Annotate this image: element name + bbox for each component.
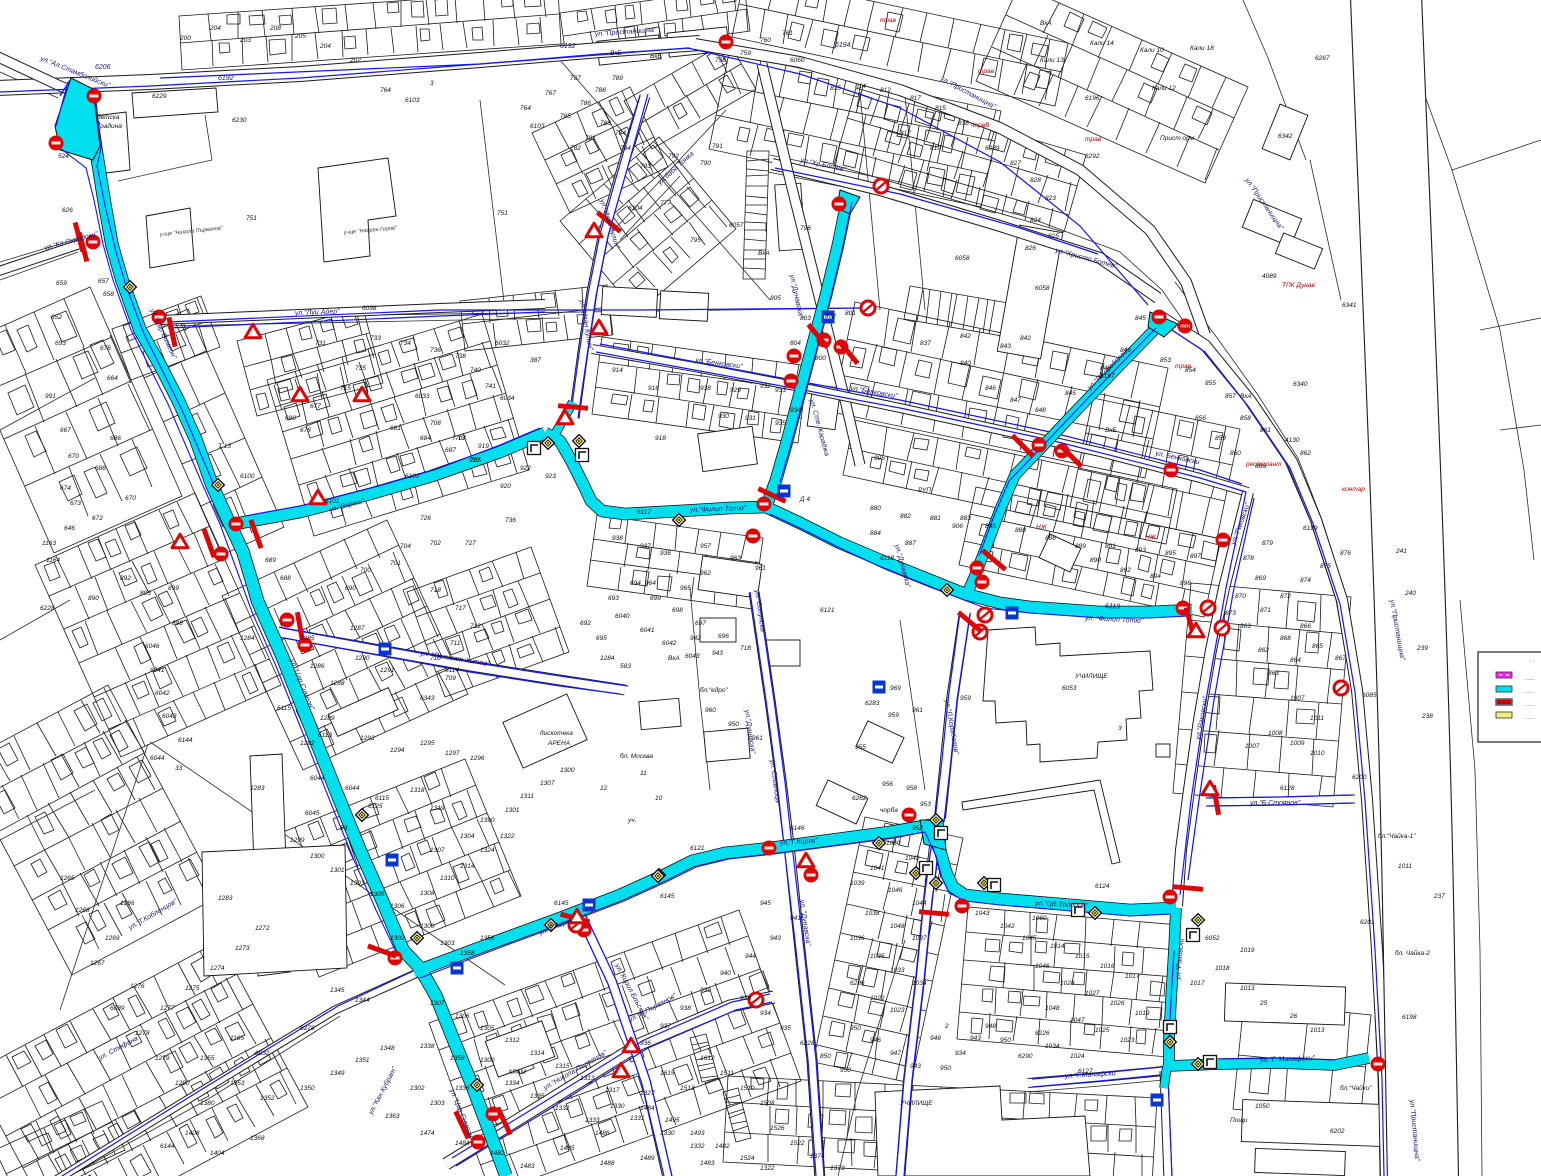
svg-text:758: 758 (715, 57, 726, 64)
svg-text:1330: 1330 (610, 1103, 625, 1110)
svg-text:1300: 1300 (310, 853, 325, 860)
svg-text:6114: 6114 (445, 667, 459, 674)
svg-text:688: 688 (95, 465, 106, 472)
svg-text:6089: 6089 (985, 145, 1000, 152)
svg-text:882: 882 (900, 513, 911, 520)
svg-text:688: 688 (280, 575, 291, 582)
svg-text:955: 955 (855, 744, 866, 751)
svg-text:824: 824 (1030, 217, 1041, 224)
svg-text:6043: 6043 (162, 713, 177, 720)
svg-text:847: 847 (1010, 397, 1021, 404)
svg-text:1314: 1314 (460, 863, 475, 870)
svg-text:26: 26 (1289, 1013, 1298, 1020)
svg-text:1046: 1046 (1035, 963, 1050, 970)
svg-text:929: 929 (730, 387, 741, 394)
svg-text:6032: 6032 (495, 340, 510, 347)
svg-text:1296: 1296 (470, 755, 485, 762)
svg-text:1318: 1318 (410, 787, 425, 794)
svg-text:819: 819 (930, 145, 941, 152)
svg-text:1011: 1011 (1310, 715, 1324, 722)
svg-text:1025: 1025 (1095, 1027, 1110, 1034)
svg-text:1283: 1283 (250, 785, 265, 792)
svg-text:1022: 1022 (870, 995, 885, 1002)
svg-text:ВкБ: ВкБ (650, 53, 662, 60)
svg-text:238: 238 (1421, 713, 1433, 720)
svg-text:6102: 6102 (405, 473, 420, 480)
svg-text:1331: 1331 (630, 1115, 645, 1122)
svg-text:1345: 1345 (330, 987, 345, 994)
svg-text:1304: 1304 (460, 833, 475, 840)
svg-text:878: 878 (1243, 555, 1254, 562)
svg-text:1510: 1510 (740, 1085, 755, 1092)
svg-text:1009: 1009 (1290, 740, 1305, 747)
svg-text:6042: 6042 (155, 690, 170, 697)
svg-text:659: 659 (56, 280, 67, 287)
svg-text:1034: 1034 (1045, 1043, 1060, 1050)
svg-text:1015: 1015 (1075, 953, 1090, 960)
svg-text:6230: 6230 (232, 117, 247, 124)
svg-text:876: 876 (1340, 550, 1351, 557)
svg-text:1026: 1026 (1110, 1000, 1125, 1007)
svg-text:726: 726 (420, 515, 431, 522)
svg-text:ул.“Б.Стоянов”: ул.“Б.Стоянов” (1249, 800, 1301, 807)
svg-text:885: 885 (985, 523, 996, 530)
svg-text:927: 927 (469, 457, 480, 464)
svg-text:6124: 6124 (1095, 883, 1110, 890)
svg-text:1368: 1368 (250, 1135, 265, 1142)
svg-text:667: 667 (60, 427, 71, 434)
svg-text:6290: 6290 (1018, 1053, 1033, 1060)
svg-text:T 13: T 13 (218, 443, 231, 450)
svg-text:1513: 1513 (680, 1085, 695, 1092)
svg-text:764: 764 (380, 87, 391, 94)
svg-text:33: 33 (175, 765, 183, 772)
svg-text:937: 937 (660, 1023, 671, 1030)
svg-text:1035: 1035 (870, 953, 885, 960)
svg-text:6228: 6228 (800, 1040, 815, 1047)
svg-text:1014: 1014 (1050, 943, 1065, 950)
svg-text:961: 961 (755, 565, 766, 572)
svg-text:864: 864 (1290, 657, 1301, 664)
svg-text:734: 734 (400, 340, 411, 347)
svg-text:697: 697 (695, 620, 706, 627)
svg-text:1332: 1332 (690, 1143, 705, 1150)
svg-text:1484: 1484 (640, 1105, 655, 1112)
svg-text:1482: 1482 (490, 1150, 505, 1157)
svg-text:6267: 6267 (1315, 55, 1330, 62)
svg-text:6118: 6118 (880, 555, 894, 562)
svg-text:1275: 1275 (185, 985, 200, 992)
svg-text:678: 678 (300, 427, 311, 434)
svg-text:6198: 6198 (1402, 1014, 1417, 1021)
svg-text:842: 842 (960, 333, 971, 340)
svg-text:НЖ: НЖ (1036, 524, 1048, 531)
svg-text:938: 938 (740, 995, 751, 1002)
svg-text:1268: 1268 (75, 907, 90, 914)
svg-text:1313: 1313 (580, 1075, 595, 1082)
svg-text:803: 803 (800, 315, 811, 322)
svg-text:958: 958 (906, 785, 917, 792)
svg-text:861: 861 (1260, 427, 1271, 434)
svg-text:715: 715 (340, 385, 351, 392)
svg-text:трав: трав (978, 68, 995, 75)
svg-text:842: 842 (1020, 335, 1031, 342)
svg-text:869: 869 (1255, 575, 1266, 582)
svg-text:815: 815 (830, 85, 841, 92)
svg-text:850: 850 (820, 1053, 831, 1060)
svg-text:6042: 6042 (662, 640, 677, 647)
svg-text:740: 740 (470, 367, 481, 374)
svg-text:6113: 6113 (318, 732, 332, 739)
svg-text:950: 950 (850, 1025, 861, 1032)
svg-text:736: 736 (505, 517, 516, 524)
svg-text:788: 788 (595, 87, 606, 94)
svg-text:738: 738 (455, 353, 466, 360)
svg-text:857: 857 (1225, 393, 1236, 400)
svg-text:845: 845 (1135, 315, 1146, 322)
svg-text:1289: 1289 (320, 715, 335, 722)
svg-text:1300: 1300 (480, 1057, 495, 1064)
svg-text:690: 690 (345, 585, 356, 592)
svg-text:873: 873 (1225, 610, 1236, 617)
svg-text:ЧервВ: ЧервВ (970, 122, 990, 129)
svg-text:202: 202 (349, 57, 361, 64)
svg-text:764: 764 (520, 105, 531, 112)
svg-text:845: 845 (1065, 390, 1076, 397)
svg-text:дискотека: дискотека (540, 729, 573, 737)
svg-text:1274: 1274 (210, 965, 225, 972)
svg-text:777: 777 (660, 200, 671, 207)
svg-text:827: 827 (1010, 160, 1021, 167)
svg-text:1291: 1291 (380, 667, 395, 674)
svg-text:1358: 1358 (460, 950, 475, 957)
svg-text:6103: 6103 (530, 123, 545, 130)
svg-text:6041: 6041 (640, 627, 655, 634)
svg-text:1013: 1013 (1240, 985, 1255, 992)
svg-text:934: 934 (760, 1010, 771, 1017)
svg-text:957: 957 (700, 543, 711, 550)
svg-text:681: 681 (390, 425, 401, 432)
svg-text:трав: трав (880, 17, 897, 24)
svg-text:789: 789 (612, 75, 623, 82)
svg-text:843: 843 (1000, 343, 1011, 350)
svg-text:944: 944 (745, 953, 756, 960)
svg-text:6058: 6058 (955, 255, 970, 262)
svg-text:934: 934 (790, 407, 801, 414)
svg-text:1352: 1352 (260, 1095, 275, 1102)
svg-text:53: 53 (340, 825, 348, 832)
svg-text:1299: 1299 (290, 837, 305, 844)
svg-text:1315: 1315 (555, 1063, 570, 1070)
svg-text:693: 693 (608, 595, 619, 602)
svg-text:1489: 1489 (640, 1155, 655, 1162)
svg-text:6286: 6286 (850, 980, 865, 987)
svg-text:ВкБ: ВкБ (610, 50, 622, 57)
svg-text:1028: 1028 (1060, 980, 1075, 987)
svg-text:1349: 1349 (330, 1070, 345, 1077)
svg-text:673: 673 (70, 500, 81, 507)
svg-text:790: 790 (700, 160, 711, 167)
svg-text:3: 3 (1118, 725, 1122, 732)
svg-text:6085: 6085 (1362, 692, 1377, 699)
svg-text:826: 826 (1025, 245, 1036, 252)
svg-text:1163: 1163 (42, 540, 56, 547)
svg-text:1333: 1333 (585, 1117, 600, 1124)
svg-text:237: 237 (1433, 893, 1445, 900)
svg-text:1018: 1018 (1215, 965, 1230, 972)
svg-text:1047: 1047 (1070, 1017, 1085, 1024)
svg-text:653: 653 (55, 340, 66, 347)
svg-text:943: 943 (770, 935, 781, 942)
svg-text:936: 936 (660, 550, 671, 557)
svg-text:Кали 12: Кали 12 (1152, 85, 1176, 92)
svg-text:802: 802 (825, 313, 836, 320)
svg-text:524: 524 (58, 153, 69, 160)
svg-text:1303: 1303 (430, 1100, 445, 1107)
svg-text:1358: 1358 (450, 1055, 465, 1062)
svg-text:1483: 1483 (700, 1160, 715, 1167)
svg-text:уч.: уч. (627, 817, 637, 824)
svg-text:Д 4: Д 4 (799, 496, 810, 503)
svg-text:891: 891 (1105, 543, 1116, 550)
svg-text:бл. Чайка-2: бл. Чайка-2 (1395, 949, 1430, 957)
svg-text:6262: 6262 (852, 795, 867, 802)
svg-text:1495: 1495 (665, 1117, 680, 1124)
svg-text:ВкА: ВкА (1240, 393, 1252, 400)
svg-text:1277: 1277 (160, 1005, 175, 1012)
svg-text:948: 948 (985, 1023, 996, 1030)
svg-text:1508: 1508 (760, 1100, 775, 1107)
svg-text:893: 893 (140, 590, 151, 597)
svg-text:710: 710 (430, 655, 441, 662)
svg-text:919: 919 (478, 443, 489, 450)
svg-text:782: 782 (570, 145, 581, 152)
svg-text:846: 846 (1120, 347, 1131, 354)
svg-text:702: 702 (430, 540, 441, 547)
svg-text:1311: 1311 (520, 793, 534, 800)
svg-text:658: 658 (103, 291, 114, 298)
svg-text:1278: 1278 (135, 1030, 150, 1037)
svg-text:ул.“Луи Айер”: ул.“Луи Айер” (294, 307, 340, 317)
svg-text:1330: 1330 (660, 1130, 675, 1137)
svg-text:704: 704 (400, 543, 411, 550)
svg-text:1023: 1023 (890, 1007, 905, 1014)
svg-text:6292: 6292 (1085, 153, 1100, 160)
svg-text:ВкА: ВкА (1040, 20, 1052, 27)
svg-text:887: 887 (905, 540, 916, 547)
svg-text:11: 11 (640, 770, 647, 777)
svg-text:938: 938 (612, 535, 623, 542)
svg-text:892: 892 (120, 575, 131, 582)
svg-text:626: 626 (62, 207, 73, 214)
svg-text:4089: 4089 (1262, 273, 1277, 280)
svg-text:950: 950 (840, 1067, 851, 1074)
svg-text:943: 943 (712, 650, 723, 657)
svg-text:6144: 6144 (160, 1143, 175, 1150)
svg-text:1482: 1482 (715, 1143, 730, 1150)
svg-text:863: 863 (1240, 623, 1251, 630)
svg-text:6283: 6283 (865, 700, 880, 707)
svg-text:1265: 1265 (60, 875, 75, 882)
svg-text:6052: 6052 (1205, 935, 1220, 942)
svg-text:881: 881 (930, 515, 941, 522)
svg-text:1474: 1474 (420, 1130, 435, 1137)
svg-text:872: 872 (1280, 593, 1291, 600)
svg-text:1288: 1288 (330, 680, 345, 687)
svg-text:760: 760 (760, 37, 771, 44)
svg-text:871: 871 (1260, 607, 1271, 614)
svg-text:1027: 1027 (1085, 990, 1100, 997)
svg-text:652: 652 (51, 314, 62, 321)
svg-text:Кали 13: Кали 13 (1040, 57, 1064, 64)
svg-text:1048: 1048 (890, 923, 905, 930)
svg-text:677: 677 (310, 403, 321, 410)
svg-text:1302: 1302 (410, 1085, 425, 1092)
svg-text:6046: 6046 (145, 643, 160, 650)
svg-text:1290: 1290 (355, 655, 370, 662)
svg-text:865: 865 (1312, 643, 1323, 650)
svg-text:894: 894 (1150, 573, 1161, 580)
svg-text:.......: ....... (1525, 702, 1535, 708)
svg-text:1305: 1305 (480, 1025, 495, 1032)
svg-text:1351: 1351 (355, 1057, 370, 1064)
svg-text:1284: 1284 (600, 655, 615, 662)
svg-text:РУП: РУП (918, 487, 931, 494)
svg-text:858: 858 (1240, 415, 1251, 422)
svg-text:696: 696 (718, 633, 729, 640)
svg-text:1307: 1307 (430, 847, 445, 854)
svg-text:6128: 6128 (1280, 785, 1295, 792)
svg-text:1037: 1037 (912, 935, 927, 942)
svg-text:1033: 1033 (890, 967, 905, 974)
svg-text:бл. Москва: бл. Москва (620, 752, 653, 760)
svg-text:6039: 6039 (110, 1005, 125, 1012)
svg-text:бл.“едро”: бл.“едро” (700, 686, 729, 694)
svg-text:670: 670 (68, 453, 79, 460)
svg-text:1301: 1301 (330, 867, 345, 874)
svg-text:6101: 6101 (325, 498, 340, 505)
svg-text:6340: 6340 (1293, 381, 1308, 388)
svg-text:6196: 6196 (1085, 95, 1100, 102)
svg-text:930: 930 (718, 413, 729, 420)
svg-text:25: 25 (1259, 1000, 1268, 1007)
svg-text:892: 892 (1120, 567, 1131, 574)
svg-text:1283: 1283 (218, 895, 233, 902)
svg-text:695: 695 (596, 635, 607, 642)
svg-text:890: 890 (88, 595, 99, 602)
svg-text:1287: 1287 (350, 625, 365, 632)
svg-text:1293: 1293 (360, 735, 375, 742)
svg-text:960: 960 (705, 707, 716, 714)
svg-text:· ·: · · (1530, 659, 1535, 665)
svg-text:914: 914 (612, 367, 623, 374)
svg-text:204: 204 (319, 43, 331, 50)
svg-text:бл.“Чайки”: бл.“Чайки” (1340, 1084, 1372, 1092)
svg-text:Кали 10: Кали 10 (1140, 47, 1164, 54)
svg-text:699: 699 (650, 595, 661, 602)
svg-text:751: 751 (246, 215, 257, 222)
svg-text:895: 895 (1165, 550, 1176, 557)
svg-text:950: 950 (728, 721, 739, 728)
svg-text:937: 937 (640, 543, 651, 550)
svg-text:672: 672 (92, 515, 103, 522)
svg-text:783: 783 (600, 120, 611, 127)
svg-text:1303: 1303 (440, 940, 455, 947)
svg-text:718: 718 (740, 645, 751, 652)
svg-text:933: 933 (775, 387, 786, 394)
svg-text:848: 848 (1035, 407, 1046, 414)
svg-text:735: 735 (355, 365, 366, 372)
svg-text:1338: 1338 (420, 1043, 435, 1050)
svg-text:1038: 1038 (865, 910, 880, 917)
svg-text:1483: 1483 (520, 1163, 535, 1170)
svg-text:856: 856 (1195, 415, 1206, 422)
svg-text:1060: 1060 (886, 840, 901, 847)
svg-text:893: 893 (1135, 547, 1146, 554)
svg-text:583: 583 (620, 663, 631, 670)
svg-text:950: 950 (1000, 1037, 1011, 1044)
svg-text:938: 938 (700, 385, 711, 392)
svg-text:1322: 1322 (760, 1165, 775, 1172)
svg-text:6117: 6117 (637, 509, 651, 516)
svg-text:6121: 6121 (690, 845, 705, 852)
svg-text:1279: 1279 (155, 1055, 170, 1062)
svg-text:1327: 1327 (640, 1090, 655, 1097)
svg-text:952: 952 (912, 825, 923, 832)
svg-text:1486: 1486 (595, 1130, 610, 1137)
svg-text:664: 664 (107, 375, 118, 382)
svg-text:208: 208 (269, 25, 281, 32)
svg-text:1297: 1297 (445, 750, 460, 757)
svg-text:711: 711 (450, 640, 461, 647)
svg-text:1522: 1522 (790, 1140, 805, 1147)
svg-text:670: 670 (125, 495, 136, 502)
svg-text:700: 700 (360, 567, 371, 574)
svg-text:1292: 1292 (300, 740, 315, 747)
svg-text:ТПК Дунав: ТПК Дунав (1282, 282, 1315, 289)
svg-text:815: 815 (935, 105, 946, 112)
svg-text:1615: 1615 (660, 1070, 675, 1077)
svg-text:689: 689 (265, 557, 276, 564)
svg-text:936: 936 (640, 1040, 651, 1047)
svg-text:1612: 1612 (700, 1055, 715, 1062)
svg-text:1324: 1324 (480, 847, 495, 854)
svg-text:1272: 1272 (255, 925, 270, 932)
svg-text:935: 935 (775, 420, 786, 427)
svg-text:717: 717 (455, 605, 466, 612)
svg-text:867: 867 (1335, 655, 1346, 662)
svg-text:1060: 1060 (1032, 915, 1047, 922)
svg-text:657: 657 (98, 278, 109, 285)
svg-text:961: 961 (912, 707, 923, 714)
svg-text:6202: 6202 (1330, 1128, 1345, 1135)
svg-text:6098: 6098 (362, 305, 377, 312)
svg-text:6044: 6044 (345, 785, 360, 792)
svg-text:825: 825 (1048, 233, 1059, 240)
svg-text:1045: 1045 (1022, 935, 1037, 942)
svg-text:709: 709 (445, 675, 456, 682)
svg-text:6053: 6053 (1062, 685, 1077, 692)
svg-text:6115: 6115 (277, 705, 291, 712)
svg-text:800: 800 (815, 355, 826, 362)
svg-text:1336: 1336 (455, 1085, 470, 1092)
svg-text:200: 200 (179, 35, 191, 42)
svg-text:860: 860 (1230, 450, 1241, 457)
svg-text:1493: 1493 (690, 1130, 705, 1137)
svg-text:736: 736 (430, 347, 441, 354)
svg-text:718: 718 (430, 587, 441, 594)
svg-text:1356: 1356 (480, 935, 495, 942)
